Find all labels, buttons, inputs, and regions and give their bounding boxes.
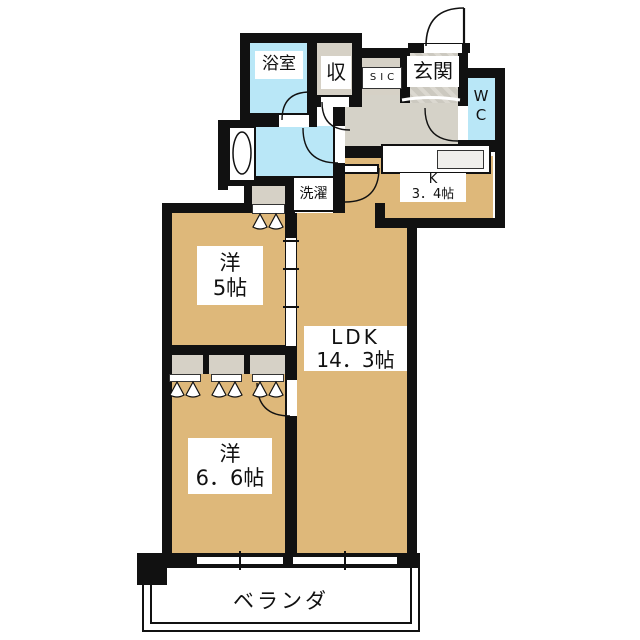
western5-name: 洋 bbox=[220, 251, 241, 275]
kitchen-name: K bbox=[429, 173, 438, 188]
opening-west66-door bbox=[287, 380, 297, 416]
washroom-floor bbox=[256, 126, 333, 180]
floor-plan: 浴室 収 SIC 玄関 W C 洗濯 K 3．4帖 洋 5帖 LDK 14．3帖… bbox=[0, 0, 640, 640]
closet3-floor bbox=[250, 355, 285, 374]
wall-k-bottom bbox=[375, 218, 505, 228]
wall-divider-stub-top bbox=[285, 213, 297, 237]
sliding-door-partition bbox=[285, 237, 297, 347]
ldk-size: 14．3帖 bbox=[316, 349, 394, 372]
wc-label: W C bbox=[471, 86, 491, 126]
wall-ldk-right bbox=[407, 218, 417, 568]
ldk-label: LDK 14．3帖 bbox=[304, 326, 407, 371]
wall-west5-top bbox=[162, 203, 252, 213]
veranda-label: ベランダ bbox=[200, 586, 362, 616]
western66-size: 6．6帖 bbox=[196, 466, 265, 490]
slider-tick bbox=[283, 306, 299, 308]
western5-size: 5帖 bbox=[213, 276, 247, 300]
entry-door-arc bbox=[426, 8, 464, 46]
wall-closet-div1 bbox=[203, 355, 209, 374]
ldk-floor bbox=[297, 213, 407, 556]
closet2-floor bbox=[209, 355, 244, 374]
opening-closet1 bbox=[169, 374, 201, 382]
wall-closet-div2 bbox=[244, 355, 250, 374]
slider-tick bbox=[283, 240, 299, 242]
opening-closet2 bbox=[211, 374, 242, 382]
opening-hallcloset bbox=[252, 204, 285, 214]
opening-wc-door bbox=[458, 106, 468, 140]
slider-tick bbox=[283, 268, 299, 270]
opening-washroom-door bbox=[335, 126, 345, 163]
wall-closetrow-top bbox=[162, 345, 297, 355]
sic-label: SIC bbox=[362, 67, 402, 89]
bath-label: 浴室 bbox=[255, 51, 303, 79]
opening-bath-door bbox=[279, 115, 309, 127]
kitchen-label: K 3．4帖 bbox=[400, 173, 466, 202]
opening-entry-door bbox=[424, 44, 462, 53]
kitchen-sink bbox=[437, 150, 484, 169]
laundry-label: 洗濯 bbox=[292, 176, 335, 212]
entrance-label: 玄関 bbox=[407, 56, 459, 87]
ldk-name: LDK bbox=[331, 326, 380, 349]
door-leaf-hall-ldk bbox=[343, 164, 379, 174]
storage-label: 収 bbox=[321, 56, 351, 89]
wall-top-bath bbox=[240, 33, 362, 43]
western5-label: 洋 5帖 bbox=[197, 246, 263, 305]
opening-storage-door bbox=[321, 97, 349, 107]
western66-name: 洋 bbox=[220, 442, 241, 466]
closet1-floor bbox=[167, 355, 203, 374]
vanity-unit bbox=[228, 126, 256, 182]
kitchen-size: 3．4帖 bbox=[412, 188, 455, 203]
western66-label: 洋 6．6帖 bbox=[188, 438, 272, 494]
opening-closet3 bbox=[252, 374, 284, 382]
